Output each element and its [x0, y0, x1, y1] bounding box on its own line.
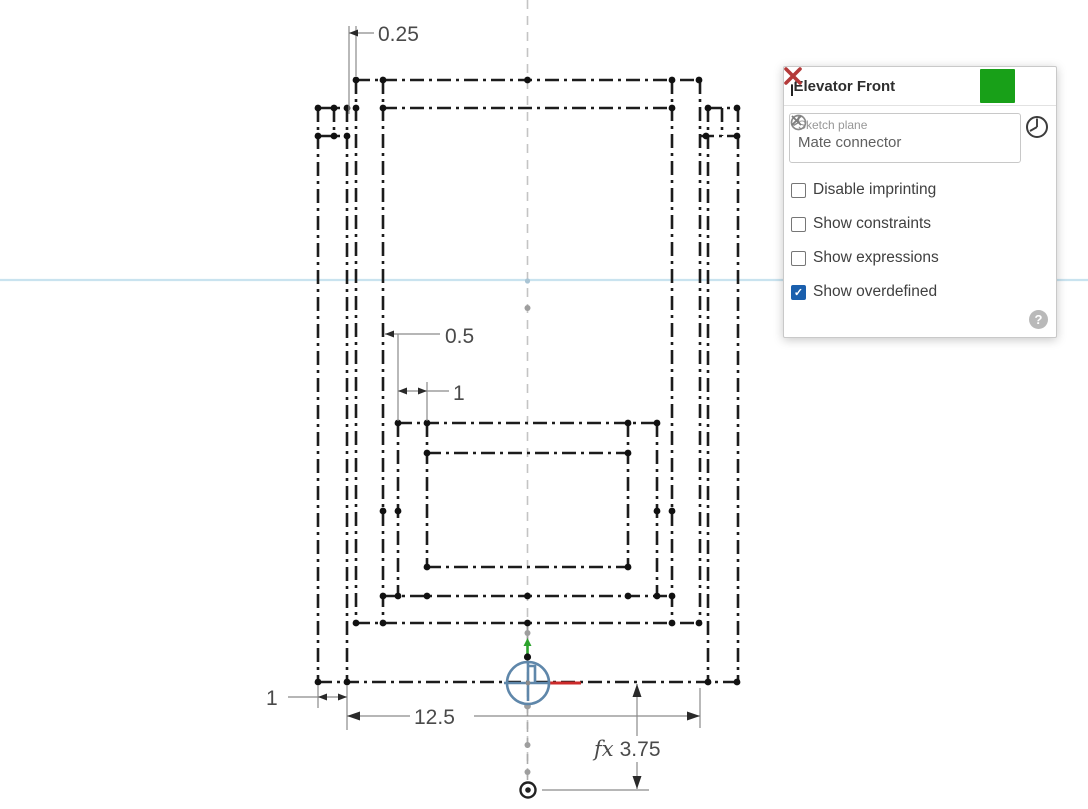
- close-icon: [784, 67, 802, 85]
- option-show-overdefined[interactable]: Show overdefined: [791, 275, 1049, 309]
- dimension-12.5-label[interactable]: 12.5: [414, 706, 455, 729]
- y-axis-arrow: [524, 638, 532, 661]
- option-show-expressions[interactable]: Show expressions: [791, 241, 1049, 275]
- confirm-button[interactable]: [980, 69, 1015, 103]
- mate-connector-indicator-icon: [1025, 115, 1049, 139]
- sketch-plane-field[interactable]: Sketch plane Mate connector: [789, 113, 1021, 163]
- sketch-name-input[interactable]: Elevator Front: [784, 76, 980, 96]
- dimension-1-bottom-label[interactable]: 1: [266, 687, 278, 710]
- dimension-0.25-label[interactable]: 0.25: [378, 23, 419, 46]
- checkbox[interactable]: [791, 183, 806, 198]
- help-icon[interactable]: ?: [1029, 310, 1048, 329]
- origin-mate-connector-icon[interactable]: [504, 662, 550, 704]
- sketch-plane-label: Sketch plane: [798, 118, 1012, 132]
- option-label: Show constraints: [813, 215, 931, 233]
- checkbox[interactable]: [791, 251, 806, 266]
- option-show-constraints[interactable]: Show constraints: [791, 207, 1049, 241]
- dimension-0.5-label[interactable]: 0.5: [445, 325, 474, 348]
- option-disable-imprinting[interactable]: Disable imprinting: [791, 173, 1049, 207]
- dialog-title: Elevator Front: [794, 78, 896, 95]
- mate-connector-icon: [972, 133, 992, 153]
- origin-point[interactable]: [521, 783, 536, 798]
- option-label: Disable imprinting: [813, 181, 936, 199]
- construction-geometry[interactable]: [318, 80, 738, 682]
- cancel-button[interactable]: [1024, 73, 1050, 99]
- dimension-lines: [288, 26, 700, 790]
- dialog-header: Elevator Front: [784, 67, 1056, 106]
- sketch-dialog: Elevator Front Sketch plane Mate connect…: [783, 66, 1057, 338]
- sketch-plane-value: Mate connector: [798, 132, 972, 154]
- clear-selection-icon[interactable]: [992, 133, 1012, 153]
- checkbox[interactable]: [791, 285, 806, 300]
- option-label: Show overdefined: [813, 283, 937, 301]
- dimension-1-mid-label[interactable]: 1: [453, 382, 465, 405]
- option-label: Show expressions: [813, 249, 939, 267]
- graphics-area[interactable]: 0.25 0.5 1 1 12.5 fx3.75 Elevator Front: [0, 0, 1088, 809]
- dialog-options: Disable imprinting Show constraints Show…: [791, 173, 1049, 309]
- checkbox[interactable]: [791, 217, 806, 232]
- dimension-3.75-label[interactable]: fx3.75: [592, 737, 661, 761]
